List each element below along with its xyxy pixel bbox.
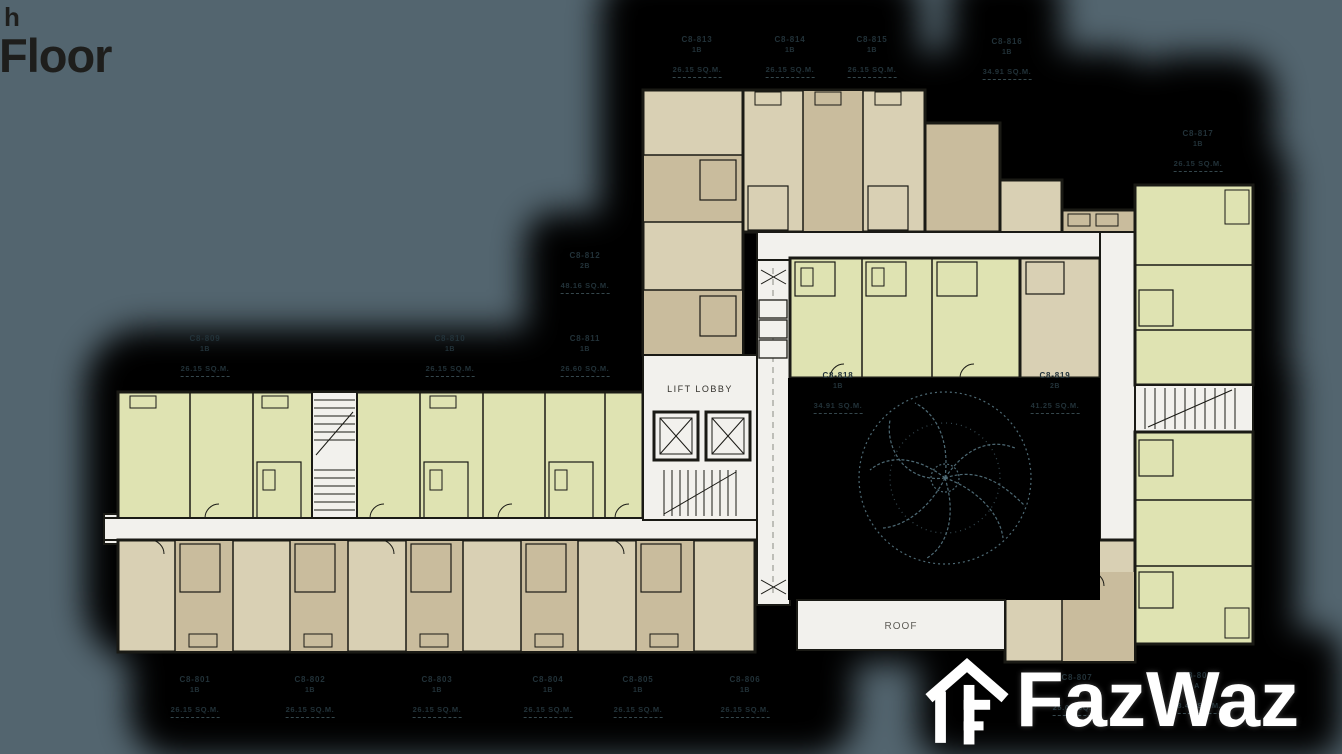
left-wing-lower-units <box>118 540 755 652</box>
vertical-corridor <box>757 260 790 605</box>
floor-plan-svg: LIFT LOBBY ROOF <box>0 0 1342 754</box>
lift-shaft-icon <box>654 412 698 460</box>
left-wing-corridor <box>104 518 757 540</box>
floor-title-text: Floor <box>0 32 111 79</box>
roof-label: ROOF <box>885 621 918 632</box>
courtyard <box>788 378 1100 600</box>
right-wing-units <box>1135 185 1253 644</box>
left-wing-stairs-icon <box>312 392 357 520</box>
fazwaz-watermark: FazWaz <box>924 644 1342 754</box>
fazwaz-house-icon <box>924 647 1010 751</box>
inner-green-units <box>790 258 1100 378</box>
right-corridor <box>1100 232 1135 562</box>
floor-ordinal-fragment: h <box>4 4 111 30</box>
lift-lobby-label: LIFT LOBBY <box>667 384 733 394</box>
lift-lobby <box>643 355 757 520</box>
lift-shaft-icon <box>706 412 750 460</box>
floor-plan-page: LIFT LOBBY ROOF h Floor C8-8131B26.15 SQ… <box>0 0 1342 754</box>
page-title: h Floor <box>2 4 111 79</box>
top-block-left-column <box>643 90 743 355</box>
upper-corridor <box>757 232 1135 260</box>
right-wing-stairs-icon <box>1135 385 1253 432</box>
fazwaz-wordmark: FazWaz <box>1016 660 1299 738</box>
left-wing-upper-units <box>118 392 643 520</box>
